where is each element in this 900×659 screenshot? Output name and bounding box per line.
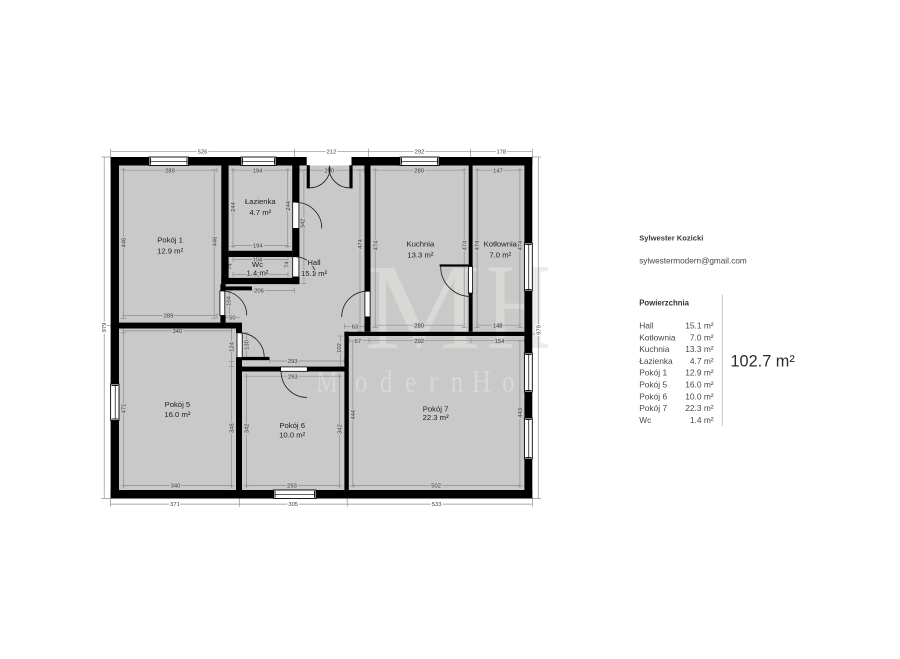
svg-text:130: 130 — [244, 340, 250, 350]
svg-text:4.7 m²: 4.7 m² — [690, 356, 714, 366]
svg-text:e: e — [405, 365, 416, 399]
svg-text:o: o — [355, 365, 367, 400]
svg-text:178: 178 — [496, 149, 506, 155]
svg-text:526: 526 — [198, 149, 208, 155]
svg-text:Kuchnia: Kuchnia — [407, 240, 436, 249]
svg-text:280: 280 — [414, 323, 424, 329]
svg-text:Hall: Hall — [639, 321, 654, 331]
svg-text:sylwestermodern@gmail.com: sylwestermodern@gmail.com — [639, 257, 747, 266]
svg-text:4.7 m²: 4.7 m² — [249, 208, 271, 217]
svg-text:292: 292 — [415, 149, 425, 155]
svg-text:Łazienka: Łazienka — [639, 356, 673, 366]
svg-text:Hall: Hall — [307, 258, 321, 267]
svg-text:342: 342 — [301, 219, 307, 229]
svg-text:147: 147 — [493, 168, 503, 174]
svg-text:10.0 m²: 10.0 m² — [685, 391, 714, 401]
svg-text:194: 194 — [253, 168, 263, 174]
svg-text:305: 305 — [288, 502, 298, 508]
svg-text:Pokój 5: Pokój 5 — [165, 400, 191, 409]
svg-text:Łazienka: Łazienka — [245, 197, 276, 206]
svg-text:340: 340 — [171, 484, 181, 490]
svg-text:7.0 m²: 7.0 m² — [690, 332, 714, 342]
svg-text:293: 293 — [288, 374, 298, 380]
svg-text:63: 63 — [352, 324, 358, 330]
svg-text:Kotłownia: Kotłownia — [639, 332, 676, 342]
svg-text:15.1 m²: 15.1 m² — [685, 321, 714, 331]
svg-text:104: 104 — [226, 295, 232, 305]
svg-text:Pokój 1: Pokój 1 — [639, 368, 667, 378]
svg-text:Kotłownia: Kotłownia — [484, 240, 518, 249]
svg-text:13.3 m²: 13.3 m² — [685, 344, 714, 354]
svg-text:15.1 m²: 15.1 m² — [301, 269, 328, 278]
svg-text:H: H — [472, 365, 491, 400]
svg-text:50: 50 — [229, 315, 235, 321]
svg-text:Sylwester Kozicki: Sylwester Kozicki — [639, 234, 703, 243]
svg-text:502: 502 — [431, 483, 441, 489]
svg-text:979: 979 — [536, 325, 542, 335]
svg-text:474: 474 — [373, 240, 379, 250]
svg-text:13.3 m²: 13.3 m² — [407, 250, 434, 259]
svg-text:Pokój 7: Pokój 7 — [423, 404, 449, 413]
svg-text:Pokój 6: Pokój 6 — [279, 421, 305, 430]
svg-text:206: 206 — [254, 288, 264, 294]
svg-text:22.3 m²: 22.3 m² — [423, 413, 450, 422]
svg-text:16.0 m²: 16.0 m² — [164, 410, 191, 419]
svg-text:102.7 m²: 102.7 m² — [731, 352, 796, 370]
svg-text:r: r — [429, 364, 439, 399]
svg-text:342: 342 — [245, 424, 251, 434]
svg-text:1.4 m²: 1.4 m² — [690, 415, 714, 425]
svg-text:474: 474 — [358, 238, 364, 248]
svg-text:d: d — [380, 365, 392, 400]
svg-text:Pokój 1: Pokój 1 — [157, 236, 183, 245]
svg-text:Pokój 7: Pokój 7 — [639, 403, 667, 413]
svg-text:979: 979 — [102, 323, 108, 333]
svg-text:292: 292 — [414, 339, 424, 345]
svg-text:340: 340 — [172, 329, 182, 335]
svg-text:74: 74 — [284, 261, 290, 268]
svg-text:102: 102 — [337, 343, 343, 353]
svg-text:Kuchnia: Kuchnia — [639, 344, 670, 354]
svg-text:Powierzchnia: Powierzchnia — [639, 299, 689, 308]
svg-text:444: 444 — [351, 409, 357, 419]
svg-text:Pokój 5: Pokój 5 — [639, 380, 667, 390]
svg-text:12.9 m²: 12.9 m² — [685, 368, 714, 378]
svg-text:7.0 m²: 7.0 m² — [489, 250, 511, 259]
svg-text:16.0 m²: 16.0 m² — [685, 380, 714, 390]
svg-text:57: 57 — [355, 339, 361, 345]
svg-text:280: 280 — [414, 168, 424, 174]
svg-text:244: 244 — [286, 200, 292, 210]
svg-text:1.4 m²: 1.4 m² — [247, 268, 269, 277]
svg-text:o: o — [502, 365, 514, 400]
svg-text:474: 474 — [462, 240, 468, 250]
svg-text:293: 293 — [287, 484, 297, 490]
svg-text:474: 474 — [518, 240, 524, 250]
svg-text:293: 293 — [288, 359, 298, 365]
svg-text:n: n — [451, 365, 463, 400]
svg-text:154: 154 — [495, 339, 505, 345]
svg-text:12.9 m²: 12.9 m² — [157, 246, 184, 255]
svg-text:371: 371 — [170, 502, 180, 508]
svg-text:348: 348 — [230, 423, 236, 433]
svg-text:Wc: Wc — [639, 415, 651, 425]
svg-text:22.3 m²: 22.3 m² — [685, 403, 714, 413]
svg-text:446: 446 — [121, 238, 127, 248]
svg-text:289: 289 — [164, 314, 174, 320]
svg-text:148: 148 — [493, 323, 503, 329]
svg-text:124: 124 — [229, 341, 235, 351]
svg-text:10.0 m²: 10.0 m² — [279, 431, 306, 440]
svg-text:289: 289 — [165, 168, 175, 174]
svg-text:244: 244 — [231, 201, 237, 211]
svg-text:446: 446 — [212, 237, 218, 247]
svg-text:474: 474 — [475, 240, 481, 250]
svg-text:342: 342 — [338, 424, 344, 434]
svg-text:Pokój 6: Pokój 6 — [639, 391, 667, 401]
svg-text:533: 533 — [432, 502, 442, 508]
svg-text:443: 443 — [518, 408, 524, 418]
svg-text:194: 194 — [253, 244, 263, 250]
svg-text:212: 212 — [327, 149, 337, 155]
svg-text:471: 471 — [121, 404, 127, 414]
